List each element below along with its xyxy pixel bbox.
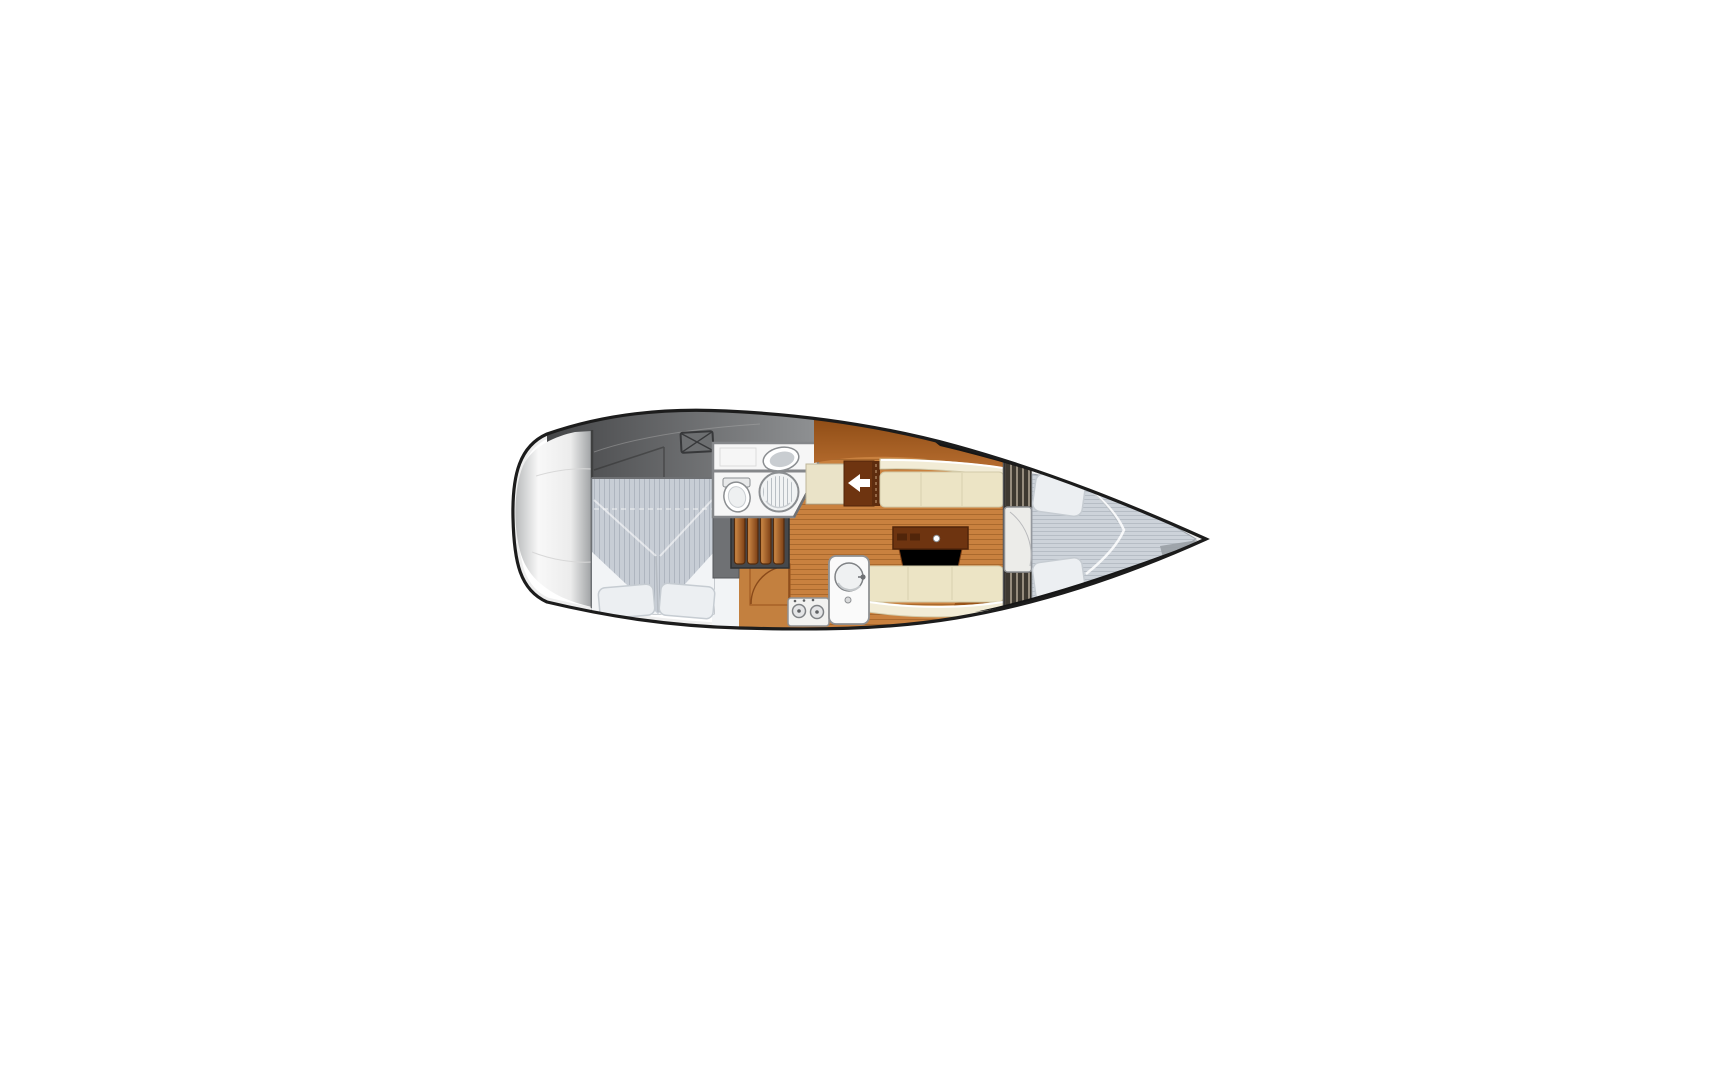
companionway-steps — [731, 510, 789, 568]
aft-pillow-right — [659, 583, 716, 620]
deck-hatch — [680, 431, 713, 453]
starboard-seat — [880, 472, 1004, 507]
starboard-settee — [880, 459, 1004, 507]
bulkhead-locker-bottom — [1005, 572, 1031, 617]
shower — [760, 473, 799, 512]
forward-cabin-door — [1005, 507, 1032, 572]
galley-sink — [829, 556, 869, 624]
table-knob — [933, 535, 939, 541]
floor-plan-svg — [0, 0, 1728, 1080]
port-seat — [864, 566, 1004, 602]
salon-table — [893, 527, 968, 572]
cream-panel — [806, 464, 844, 504]
companionway-panel — [806, 461, 880, 506]
galley-stove — [788, 598, 829, 626]
forward-bulkhead — [1004, 452, 1032, 618]
v-berth — [1031, 473, 1198, 604]
boat-floor-plan-canvas — [0, 0, 1728, 1080]
